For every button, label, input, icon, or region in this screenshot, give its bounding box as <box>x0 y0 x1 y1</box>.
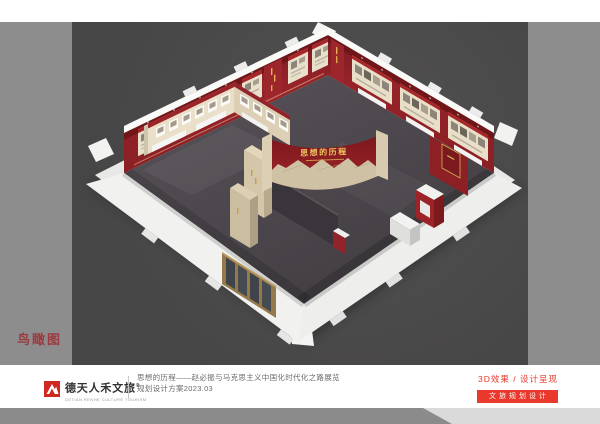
title-wall-text: 思想的历程 <box>300 146 348 158</box>
deliverable-type: 3D效果 / 设计呈现 <box>477 373 558 385</box>
service-badge: 文旅规划设计 <box>477 390 558 404</box>
project-title-line2: 规划设计方案2023.03 <box>137 384 437 395</box>
project-title-line1: 思想的历程——赵必振与马克思主义中国化时代化之路展览 <box>137 373 437 384</box>
bottom-margin <box>0 408 600 424</box>
brand-logo <box>44 381 60 397</box>
right-frame-band <box>528 22 600 365</box>
top-margin <box>0 0 600 22</box>
view-label: 鸟瞰图 <box>17 329 62 348</box>
project-title-block: 思想的历程——赵必振与马克思主义中国化时代化之路展览 规划设计方案2023.03 <box>137 373 437 394</box>
gold-text-column <box>331 39 344 85</box>
brand-name-text: 德天人禾文旅 <box>65 383 136 395</box>
brand-subtitle: DETIAN RENHE CULTURE TOURISM <box>65 397 147 402</box>
deliverable-meta: 3D效果 / 设计呈现 文旅规划设计 <box>477 373 558 403</box>
footer-bar: 德天人禾文旅® DETIAN RENHE CULTURE TOURISM 思想的… <box>0 365 600 408</box>
mountain-logo-icon <box>44 381 60 397</box>
birdseye-render: 思想的历程 <box>72 22 528 365</box>
left-frame-band: 鸟瞰图 <box>0 22 72 365</box>
presentation-board: 鸟瞰图 <box>0 0 600 424</box>
brand-name: 德天人禾文旅® <box>65 380 147 395</box>
render-stage: 思想的历程 <box>72 22 528 365</box>
footer-divider <box>128 376 129 399</box>
brand-block: 德天人禾文旅® DETIAN RENHE CULTURE TOURISM <box>65 380 147 402</box>
bottom-margin-accent <box>0 408 460 424</box>
